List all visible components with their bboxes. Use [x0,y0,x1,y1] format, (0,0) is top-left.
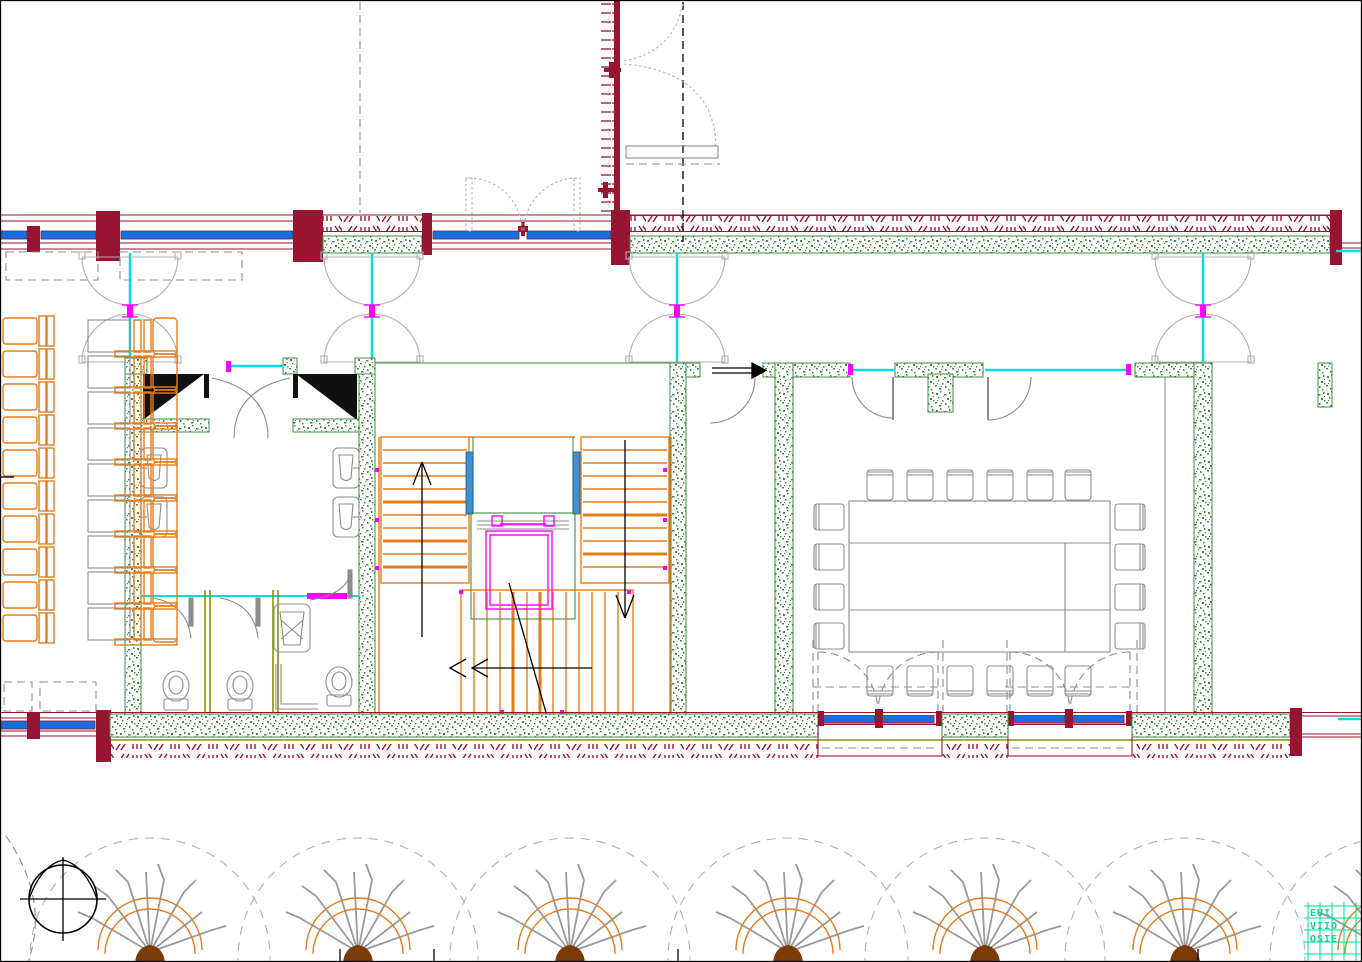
entry-door-swings [212,378,290,438]
shower-seat [274,604,310,652]
stair-down-arrow [616,440,634,618]
street-tree [1065,838,1305,962]
double-acting-door [626,252,728,363]
sink [141,448,167,488]
window-glazing [1,721,95,729]
street-tree [238,838,478,962]
canopy-projection [6,252,98,280]
toilet [163,671,189,710]
street-tree [668,838,908,962]
hall-partition [686,363,793,714]
conference-chairs [814,470,1145,696]
corridor-swing-doors [79,252,1254,363]
toilet [326,667,352,706]
shaft-glazing [573,452,580,514]
window-glazing [1,231,27,239]
toilet [227,671,253,710]
grab-rail [276,664,318,709]
title-block: EUI VIIO OSIE [1304,902,1362,962]
waiting-seating [0,316,177,645]
restroom-block [125,358,375,731]
door-swing [710,378,755,423]
shaft-glazing [466,452,473,514]
conference-table [849,501,1110,652]
street-tree [865,838,1105,962]
sink [333,448,359,488]
street-tree [450,838,690,962]
double-acting-door [321,252,423,363]
street-tree [30,838,270,962]
stall-partitions [205,590,278,713]
stair-core [375,363,686,716]
floor-plan-sheet: EUI VIIO OSIE [0,0,1362,962]
terrace-door-swings [813,640,1137,712]
top-exterior-wall [0,178,1362,280]
stair-treads-bottom [474,592,618,714]
stall-doors [153,570,352,638]
border-ticks [340,949,1198,961]
site-landscape: EUI VIIO OSIE [6,836,1362,962]
sink [333,497,359,537]
stair-up-arrow [413,462,431,637]
elevator-door-rails [477,521,569,529]
exit-arrow [712,363,766,378]
vestibule-door-swings [624,3,716,146]
door-leaf [293,374,298,398]
elevator-car [486,531,552,609]
threshold-hatch [626,146,718,158]
pilaster [1318,363,1332,407]
title-block-line: OSIE [1310,934,1338,945]
title-block-line: VIIO [1310,921,1338,932]
splayed-wall [296,374,357,420]
vestibule-wall [360,0,720,242]
stair-structure [379,437,671,716]
splayed-wall [143,374,204,420]
conference-room [793,363,1332,714]
north-arrow [20,857,106,941]
double-acting-door [1152,252,1254,363]
door-leaf [204,374,209,398]
title-block-line: EUI [1310,908,1331,919]
wall-ties [375,468,667,714]
